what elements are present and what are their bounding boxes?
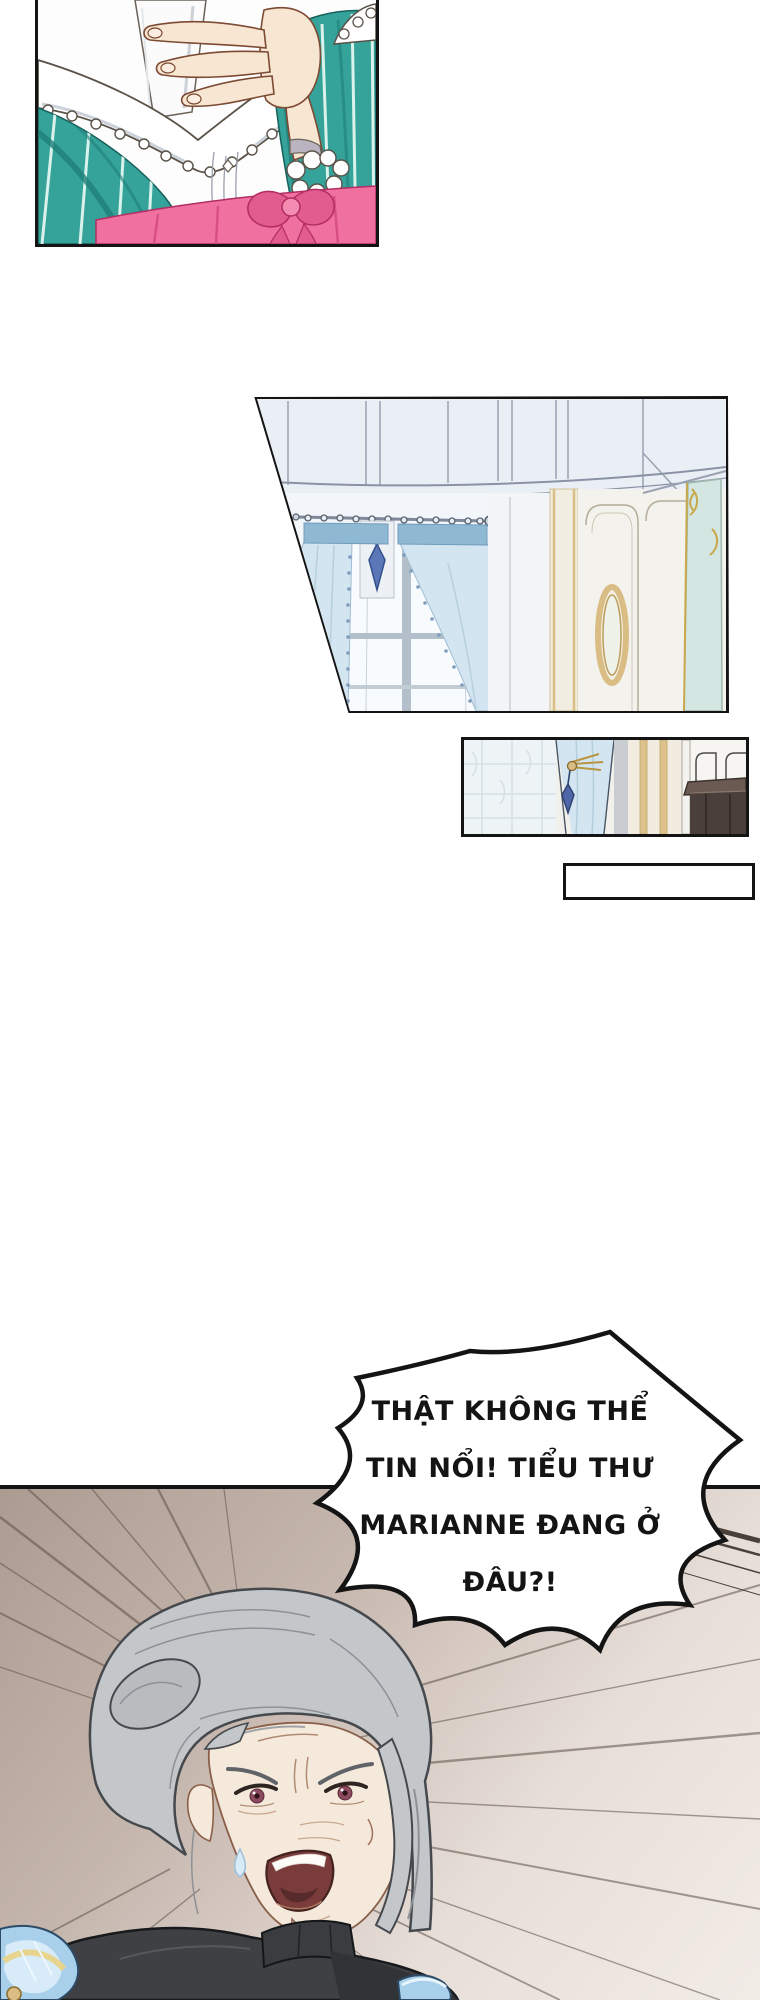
striped-wallpaper — [628, 740, 684, 834]
wood-furniture — [682, 740, 746, 834]
glass-pane — [464, 740, 556, 834]
speech-line-2: TIN NỔI! TIỂU THƯ — [330, 1440, 690, 1497]
letter-clutch-art — [38, 0, 376, 244]
panel-curtain-detail — [461, 737, 749, 837]
speech-line-1: THẬT KHÔNG THỂ — [330, 1383, 690, 1440]
comic-page: THẬT KHÔNG THỂ TIN NỔI! TIỂU THƯ MARIANN… — [0, 0, 760, 2000]
speech-line-4: ĐÂU?! — [330, 1554, 690, 1611]
gold-pilaster — [550, 489, 578, 711]
panel-letter-clutch — [35, 0, 379, 247]
small-curtain — [556, 740, 614, 834]
face — [188, 1723, 404, 1938]
curtain-detail-art — [464, 740, 746, 834]
room-art — [257, 399, 726, 711]
shout-bubble-text: THẬT KHÔNG THỂ TIN NỔI! TIỂU THƯ MARIANN… — [330, 1383, 690, 1611]
panel-room-interior — [248, 393, 732, 717]
empty-caption-box — [563, 863, 755, 900]
speech-line-3: MARIANNE ĐANG Ở — [330, 1497, 690, 1554]
